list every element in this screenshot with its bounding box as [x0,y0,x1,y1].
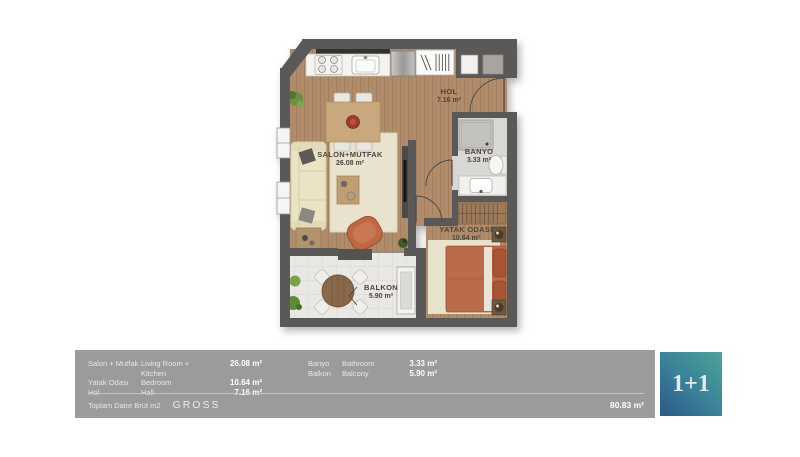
balkon-name: BALKON [364,283,398,292]
banyo-area: 3.33 m² [465,156,494,165]
balkon-area: 5.90 m² [364,292,398,301]
room-area-value: 26.08 m² [216,359,262,378]
legend-row: Yatak Odası Bedroom 10.64 m² [88,378,262,388]
room-name-tr: Balkon [308,369,342,379]
label-salon: SALON+MUTFAK 26.08 m² [317,150,382,168]
room-name-en: Bathroom [342,359,397,369]
entry-closet [416,50,454,75]
total-label-tr: Toplam Daire Brüt m2 [88,401,161,410]
banyo-name: BANYO [465,147,494,156]
hol-area: 7.16 m² [437,96,461,105]
room-name-tr: Salon + Mutfak [88,359,141,378]
apartment-type-badge: 1+1 [660,352,722,416]
yatak-name: YATAK ODASI [439,225,492,234]
label-hol: HOL 7.16 m² [437,87,461,105]
apartment-type-text: 1+1 [672,371,710,398]
legend-left-table: Salon + Mutfak Living Room + Kitchen 26.… [88,359,262,397]
room-area-value: 5.90 m² [397,369,437,379]
total-area-value: 80.83 m² [610,400,644,410]
room-name-en: Balcony [342,369,397,379]
room-name-tr: Yatak Odası [88,378,141,388]
room-name-en: Living Room + Kitchen [141,359,216,378]
yatak-area: 10.64 m² [439,234,492,243]
hol-name: HOL [437,87,461,96]
legend-right-table: Banyo Bathroom 3.33 m² Balkon Balcony 5.… [308,359,437,378]
legend-divider [88,393,644,394]
salon-area: 26.08 m² [317,159,382,168]
total-row: Toplam Daire Brüt m2 GROSS 80.83 m² [88,399,644,411]
room-area-value: 3.33 m² [397,359,437,369]
room-name-en: Bedroom [141,378,216,388]
legend-bar: Salon + Mutfak Living Room + Kitchen 26.… [75,350,655,418]
label-balkon: BALKON 5.90 m² [364,283,398,301]
room-area-value: 10.64 m² [216,378,262,388]
salon-name: SALON+MUTFAK [317,150,382,159]
label-yatak: YATAK ODASI 10.64 m² [439,225,492,243]
label-banyo: BANYO 3.33 m² [465,147,494,165]
legend-row: Balkon Balcony 5.90 m² [308,369,437,379]
room-name-tr: Banyo [308,359,342,369]
legend-row: Salon + Mutfak Living Room + Kitchen 26.… [88,359,262,378]
total-label-gross: GROSS [173,399,221,411]
legend-row: Banyo Bathroom 3.33 m² [308,359,437,369]
